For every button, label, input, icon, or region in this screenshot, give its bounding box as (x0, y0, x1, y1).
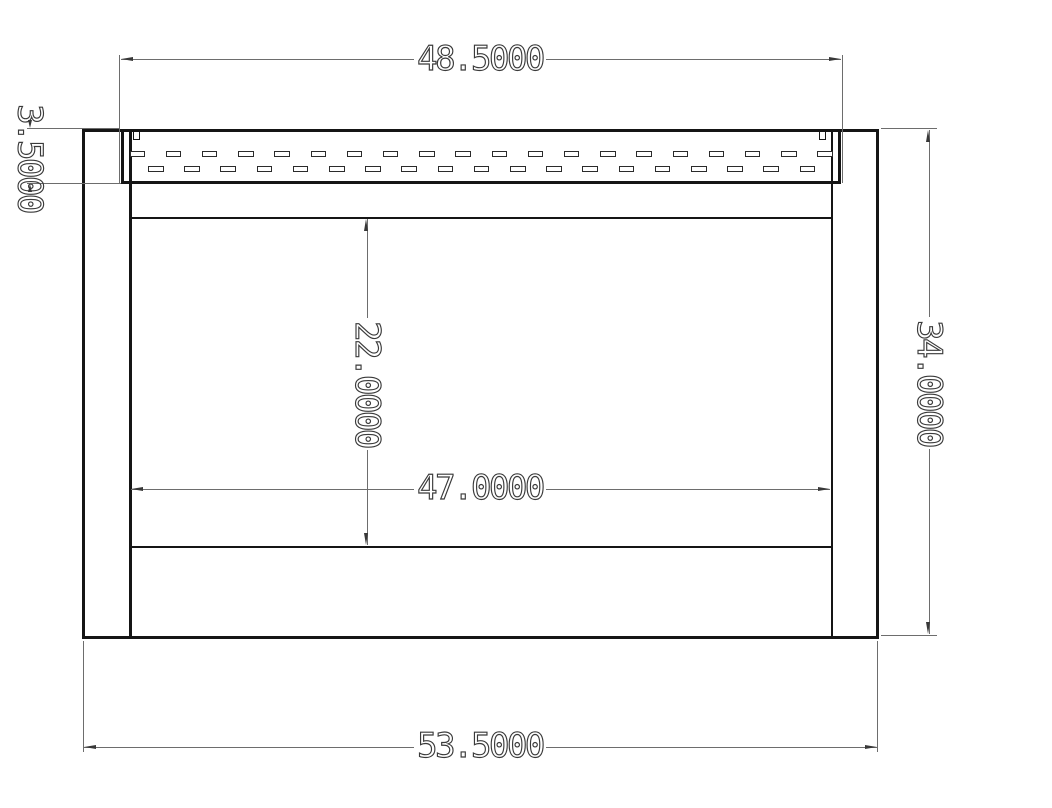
vent-slot (455, 151, 471, 157)
vent-slot (817, 151, 833, 157)
vent-slot (238, 151, 254, 157)
dim-overall-height-ext-bottom (881, 635, 937, 636)
vent-slot (438, 166, 454, 172)
top-rail-line (129, 217, 833, 220)
vent-clip-left (133, 131, 140, 140)
vent-slot (745, 151, 761, 157)
dim-overall-height-label: 34.0000 (912, 320, 946, 446)
vent-slot (383, 151, 399, 157)
vent-slot (528, 151, 544, 157)
outer-frame (82, 129, 879, 639)
vent-slot (311, 151, 327, 157)
dim-vent-width-line-left (121, 59, 414, 60)
vent-slot (166, 151, 182, 157)
dim-overall-height-arrow-top (926, 130, 930, 142)
vent-slot (655, 166, 671, 172)
dim-overall-width-line-right (546, 747, 877, 748)
cad-canvas: 48.5000 3.5000 22.0000 47.0000 34.0000 5… (0, 0, 1052, 808)
vent-slot (510, 166, 526, 172)
dim-opening-width-arrow-right (818, 487, 830, 491)
dim-overall-height-arrow-bottom (926, 622, 930, 634)
vent-slot (619, 166, 635, 172)
dim-vent-width-ext-left (119, 55, 120, 183)
right-stile-line (831, 129, 834, 639)
dim-overall-width-ext-left (83, 641, 84, 752)
dim-vent-width-line-right (546, 59, 841, 60)
dim-overall-height-line-top (929, 130, 930, 317)
vent-panel (121, 129, 841, 184)
dim-overall-width-ext-right (877, 641, 878, 752)
dim-opening-width-arrow-left (131, 487, 143, 491)
vent-slot (347, 151, 363, 157)
vent-slot (130, 151, 146, 157)
vent-slot (474, 166, 490, 172)
vent-slot (293, 166, 309, 172)
dim-vent-width-arrow-left (121, 57, 133, 61)
left-stile-line (129, 129, 132, 639)
vent-slot (781, 151, 797, 157)
bottom-rail-line (129, 546, 833, 549)
vent-slot (419, 151, 435, 157)
vent-slot (257, 166, 273, 172)
dim-vent-width-arrow-right (829, 57, 841, 61)
dim-overall-height-line-bottom (929, 449, 930, 634)
vent-slot (546, 166, 562, 172)
vent-slot (673, 151, 689, 157)
dim-overall-width-arrow-left (84, 745, 96, 749)
dim-vent-width-ext-right (842, 55, 843, 183)
vent-slot (329, 166, 345, 172)
vent-slot (582, 166, 598, 172)
dim-overall-width-label: 53.5000 (417, 729, 543, 763)
dim-opening-height-arrow-top (364, 219, 368, 231)
dim-overall-width-arrow-right (865, 745, 877, 749)
vent-slot (800, 166, 816, 172)
vent-slot (220, 166, 236, 172)
dim-opening-height-line-top (367, 219, 368, 318)
dim-opening-height-line-bottom (367, 450, 368, 545)
vent-slot (691, 166, 707, 172)
dim-vent-width-label: 48.5000 (417, 42, 543, 76)
vent-slot (564, 151, 580, 157)
vent-slot (709, 151, 725, 157)
vent-slot (365, 166, 381, 172)
vent-slot (763, 166, 779, 172)
vent-slot (148, 166, 164, 172)
dim-vent-height-label: 3.5000 (13, 104, 47, 212)
vent-slot (636, 151, 652, 157)
vent-slot (274, 151, 290, 157)
vent-slot (492, 151, 508, 157)
vent-slot (202, 151, 218, 157)
dim-opening-width-label: 47.0000 (417, 471, 543, 505)
dim-overall-width-line-left (84, 747, 414, 748)
dim-opening-width-line-right (546, 489, 830, 490)
vent-slot (600, 151, 616, 157)
vent-clip-right (819, 131, 826, 140)
vent-slot (401, 166, 417, 172)
dim-opening-height-arrow-bottom (364, 533, 368, 545)
vent-slot (184, 166, 200, 172)
vent-slot (727, 166, 743, 172)
dim-opening-width-line-left (131, 489, 414, 490)
dim-opening-height-label: 22.0000 (350, 321, 384, 447)
